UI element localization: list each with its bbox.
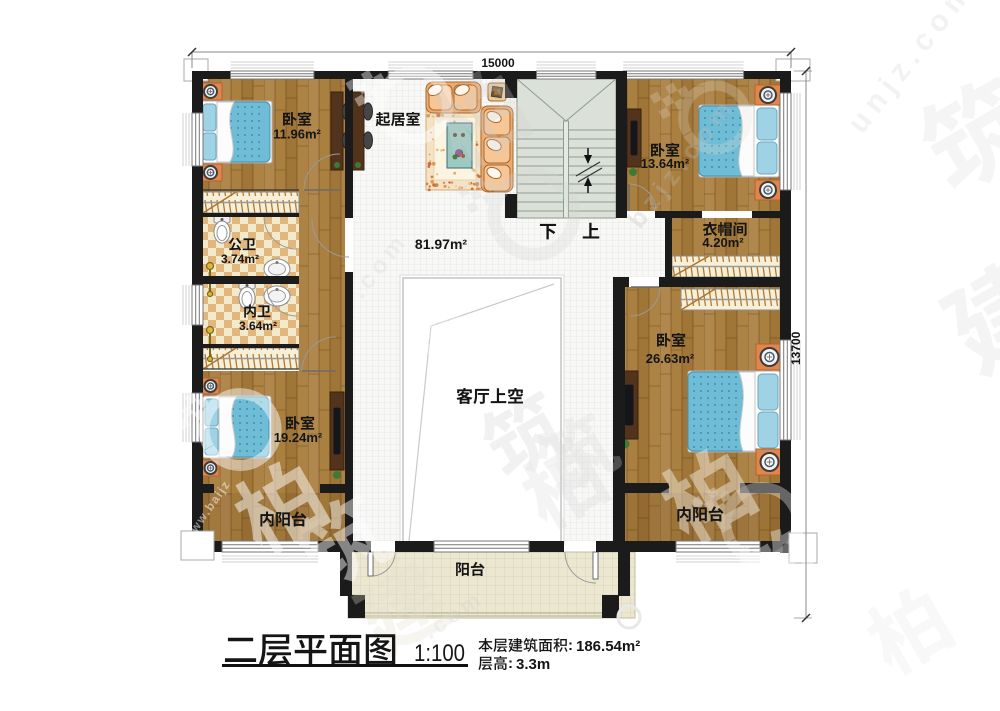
svg-text::: : xyxy=(568,637,573,654)
svg-text:1:100: 1:100 xyxy=(414,640,465,667)
svg-text:81.97m²: 81.97m² xyxy=(415,236,467,252)
svg-text:13700: 13700 xyxy=(789,331,803,365)
svg-text:186.54m²: 186.54m² xyxy=(576,638,640,655)
svg-text:3.3m: 3.3m xyxy=(516,656,550,673)
svg-text:11.96m²: 11.96m² xyxy=(273,127,321,142)
svg-text:15000: 15000 xyxy=(481,56,515,70)
svg-text:13.64m²: 13.64m² xyxy=(641,156,690,171)
svg-text:4.20m²: 4.20m² xyxy=(702,235,744,250)
svg-text:3.74m²: 3.74m² xyxy=(221,252,259,266)
svg-text:3.64m²: 3.64m² xyxy=(239,319,277,333)
svg-text::: : xyxy=(508,655,513,672)
svg-text:19.24m²: 19.24m² xyxy=(274,430,323,445)
svg-text:26.63m²: 26.63m² xyxy=(646,351,695,366)
